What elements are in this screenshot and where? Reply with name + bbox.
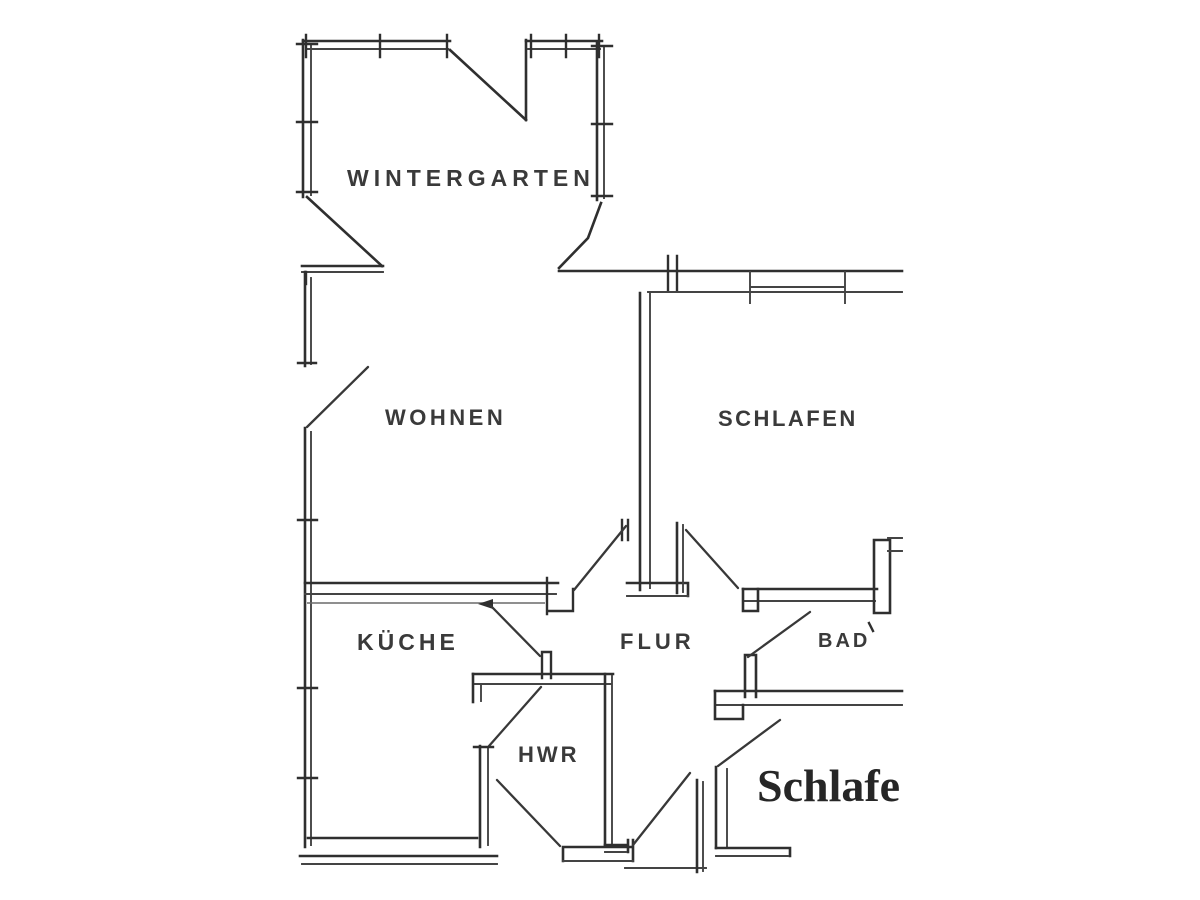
bottom-walls [300,773,706,872]
bad-door-swing [748,612,810,657]
wintergarten-notch [450,40,526,120]
schlafen-window-symbol [750,272,845,303]
hwr-exit-door-swing [497,780,560,846]
room-label-schlafen2: Schlafe [757,760,900,811]
schlafen-door-swing [686,530,738,588]
window-mullion-ticks [592,46,612,196]
room-label-schlafen: SCHLAFEN [718,406,858,431]
room-label-flur: FLUR [620,629,695,654]
room-label-wintergarten: WINTERGARTEN [347,165,595,191]
room-label-bad: BAD [818,630,870,652]
kueche-door-swing [491,606,540,656]
kueche-door [478,599,551,678]
window-mullion-ticks [297,44,317,192]
hwr-door-swing [489,687,541,746]
wall-break-symbol [668,256,677,290]
floorplan-page: WINTERGARTEN WOHNEN SCHLAFEN KÜCHE FLUR … [0,0,1200,900]
wohnen-kueche-wall [305,578,573,614]
window-mullion-ticks [306,35,447,57]
outer-top-wall [302,256,902,303]
bottom-wall-piece [563,840,633,861]
divider-foot [627,583,688,596]
wintergarten-walls [297,35,612,268]
door-stop-tick [478,599,493,609]
wintergarten-left-diagonal [307,197,382,266]
wohnen-schlafen-divider [627,293,688,596]
room-labels: WINTERGARTEN WOHNEN SCHLAFEN KÜCHE FLUR … [347,165,900,811]
schlafen2-wall-foot [716,848,790,856]
window-mullion-ticks [298,520,317,778]
room-label-kueche: KÜCHE [357,629,459,655]
balcony-door-swing [307,367,368,427]
bad-door-post-box [743,589,758,611]
room-label-hwr: HWR [518,742,580,767]
left-outer-wall [298,272,368,847]
floorplan-drawing: WINTERGARTEN WOHNEN SCHLAFEN KÜCHE FLUR … [0,0,1200,900]
corridor-door-swing [633,773,690,845]
wohnen-flur-door-swing [574,526,626,590]
window-mullion-ticks [531,35,599,57]
room-label-wohnen: WOHNEN [385,405,506,430]
wintergarten-right-diagonal [559,203,601,268]
